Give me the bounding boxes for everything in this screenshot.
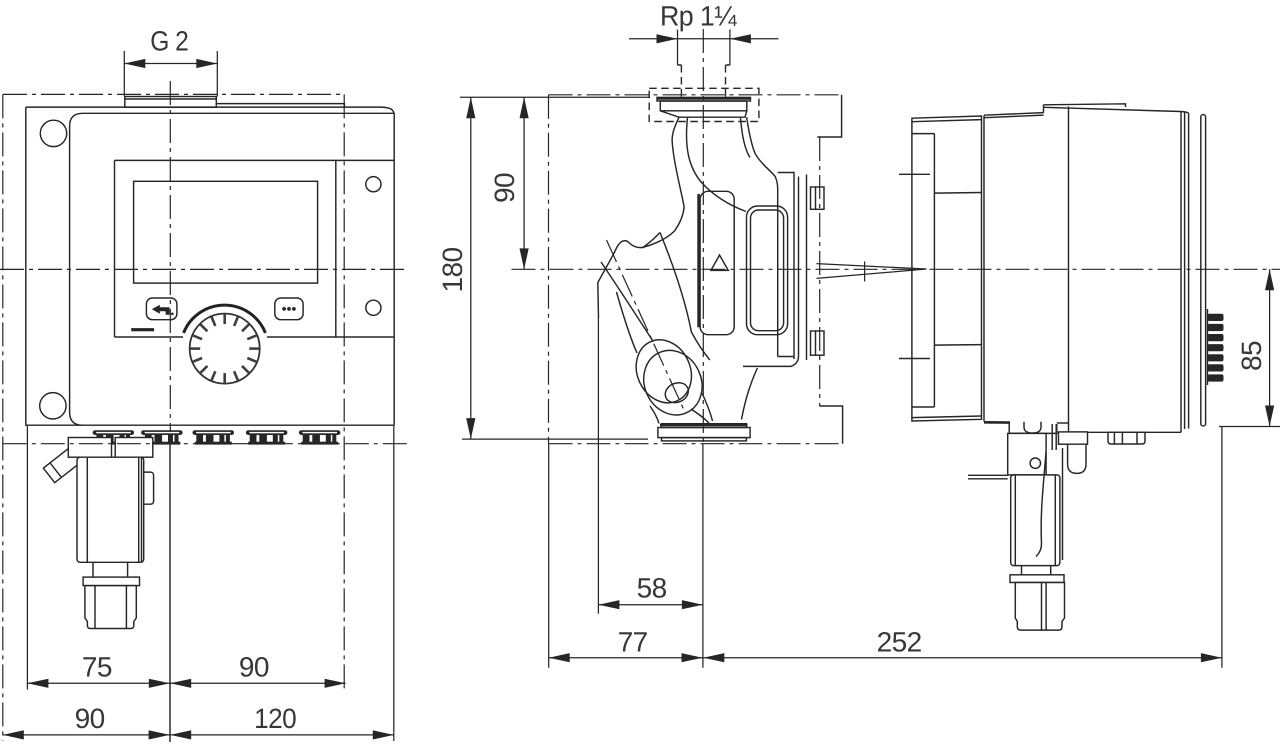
svg-text:85: 85 (1236, 341, 1267, 371)
svg-text:180: 180 (437, 247, 468, 292)
svg-text:90: 90 (239, 651, 269, 682)
svg-text:120: 120 (254, 703, 296, 734)
svg-text:90: 90 (489, 173, 520, 203)
svg-text:90: 90 (75, 703, 105, 734)
svg-text:G 2: G 2 (150, 26, 188, 57)
svg-text:77: 77 (618, 626, 648, 657)
svg-text:75: 75 (82, 651, 112, 682)
svg-text:Rp 1¼: Rp 1¼ (660, 1, 737, 32)
svg-text:58: 58 (637, 573, 667, 604)
svg-text:252: 252 (877, 626, 922, 657)
